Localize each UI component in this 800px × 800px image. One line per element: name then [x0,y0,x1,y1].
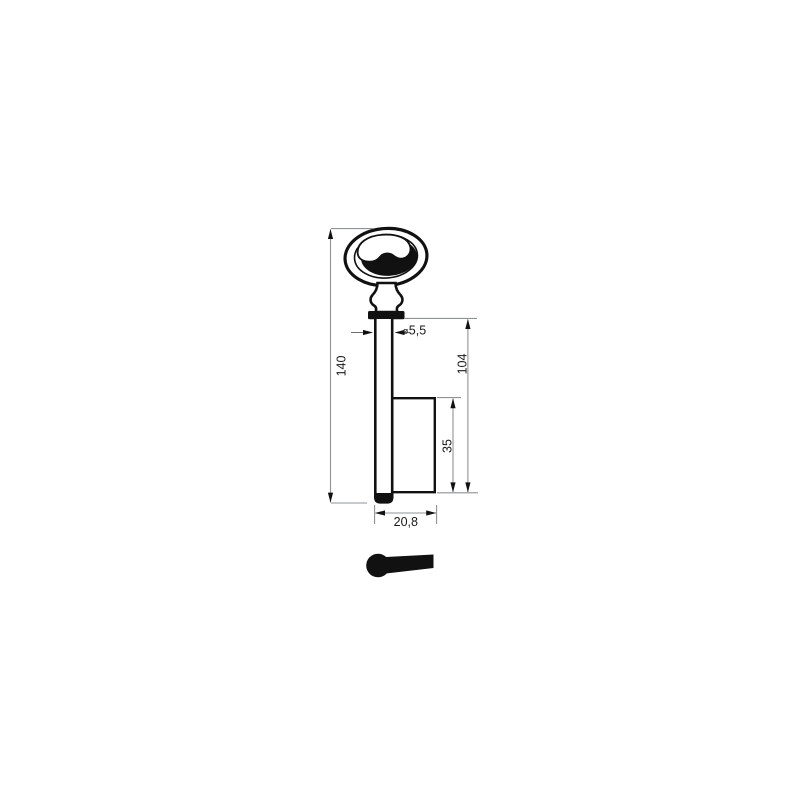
shaft-tip [374,493,394,504]
diameter-symbol: ø [403,326,409,337]
key-technical-drawing: 140 ø 5,5 104 35 20,8 [0,0,800,800]
dimension-overall-width: 20,8 [375,505,437,529]
profile-bit-taper [386,555,434,574]
shaft-fill [376,319,392,497]
key-neck [371,283,403,312]
arrow-up-icon [450,398,455,408]
key-bit [393,398,435,492]
key-bow [343,226,429,289]
drawing-canvas: 140 ø 5,5 104 35 20,8 [0,0,800,800]
key-front-view [343,226,435,504]
dimension-label-5-5: 5,5 [409,324,426,338]
key-profile-view [366,554,433,578]
dimension-label-35: 35 [441,439,455,453]
dimension-label-104: 104 [456,354,470,375]
dimension-bit-height: 35 [437,398,478,493]
arrow-down-icon [450,482,455,492]
arrow-left-icon [375,510,385,515]
arrow-down-icon [328,493,333,503]
dimension-label-20-8: 20,8 [394,515,418,529]
dimension-label-140: 140 [335,356,349,377]
arrow-up-icon [328,229,333,239]
arrow-right-icon [363,330,373,335]
arrow-right-icon [426,510,436,515]
arrow-down-icon [465,482,470,492]
arrow-up-icon [465,319,470,329]
key-shaft [374,319,394,504]
key-collar [368,311,405,319]
